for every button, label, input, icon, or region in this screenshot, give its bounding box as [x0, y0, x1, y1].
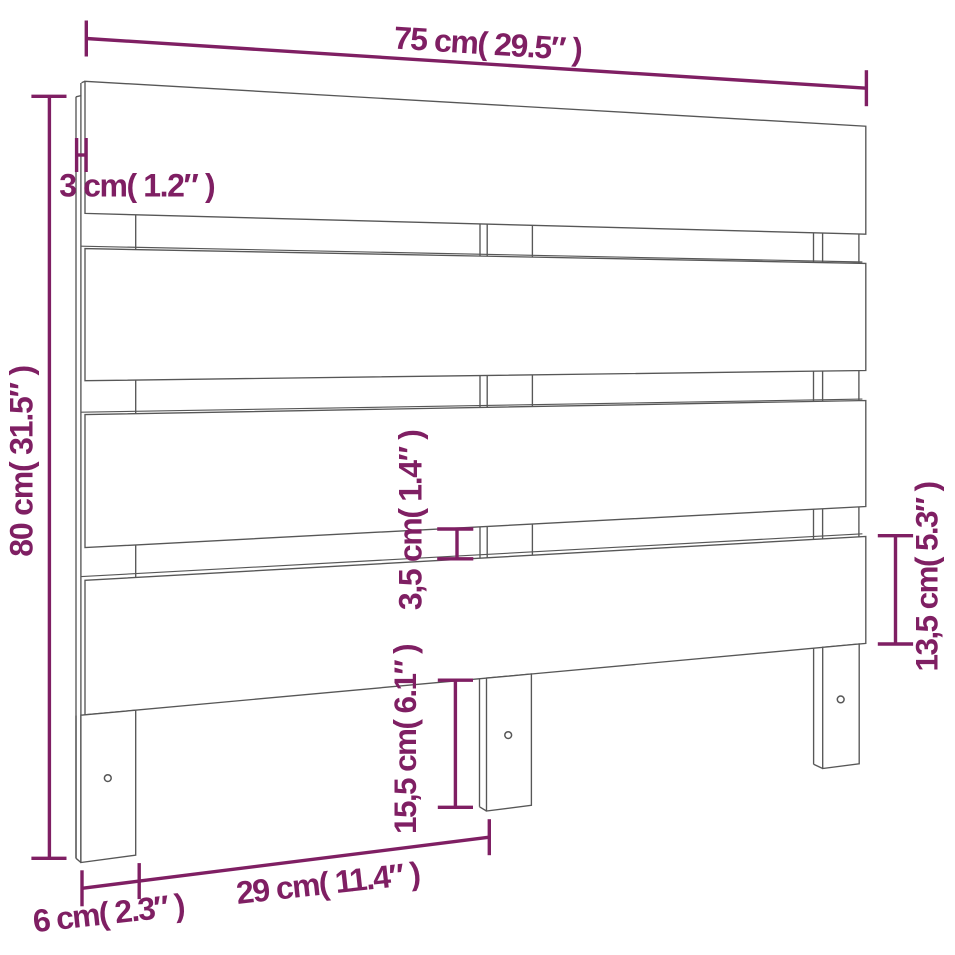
svg-text:3 cm( 1.2″ ): 3 cm( 1.2″ ) — [59, 168, 215, 204]
svg-text:80 cm( 31.5″ ): 80 cm( 31.5″ ) — [3, 366, 39, 557]
svg-text:15,5 cm( 6.1″ ): 15,5 cm( 6.1″ ) — [387, 645, 423, 834]
svg-text:13,5 cm( 5.3″ ): 13,5 cm( 5.3″ ) — [908, 482, 944, 671]
svg-text:3,5 cm( 1.4″ ): 3,5 cm( 1.4″ ) — [393, 430, 429, 610]
